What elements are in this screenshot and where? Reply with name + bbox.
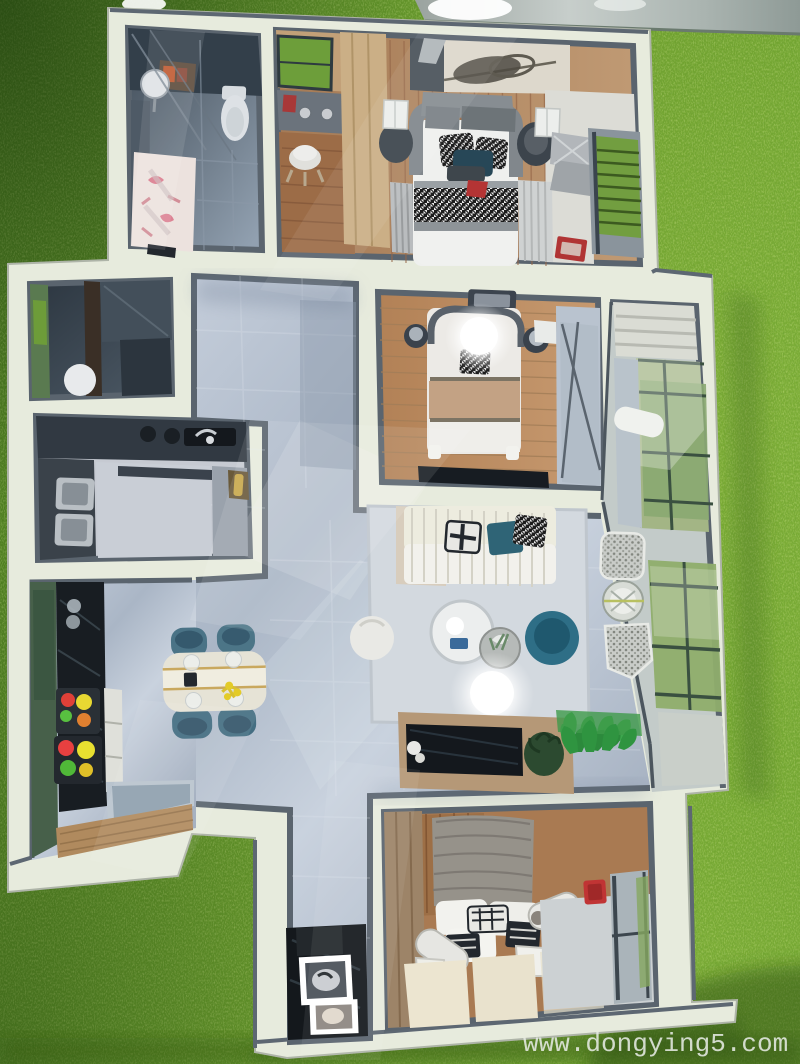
svg-text:www.dongying5.com: www.dongying5.com [523, 1029, 788, 1059]
